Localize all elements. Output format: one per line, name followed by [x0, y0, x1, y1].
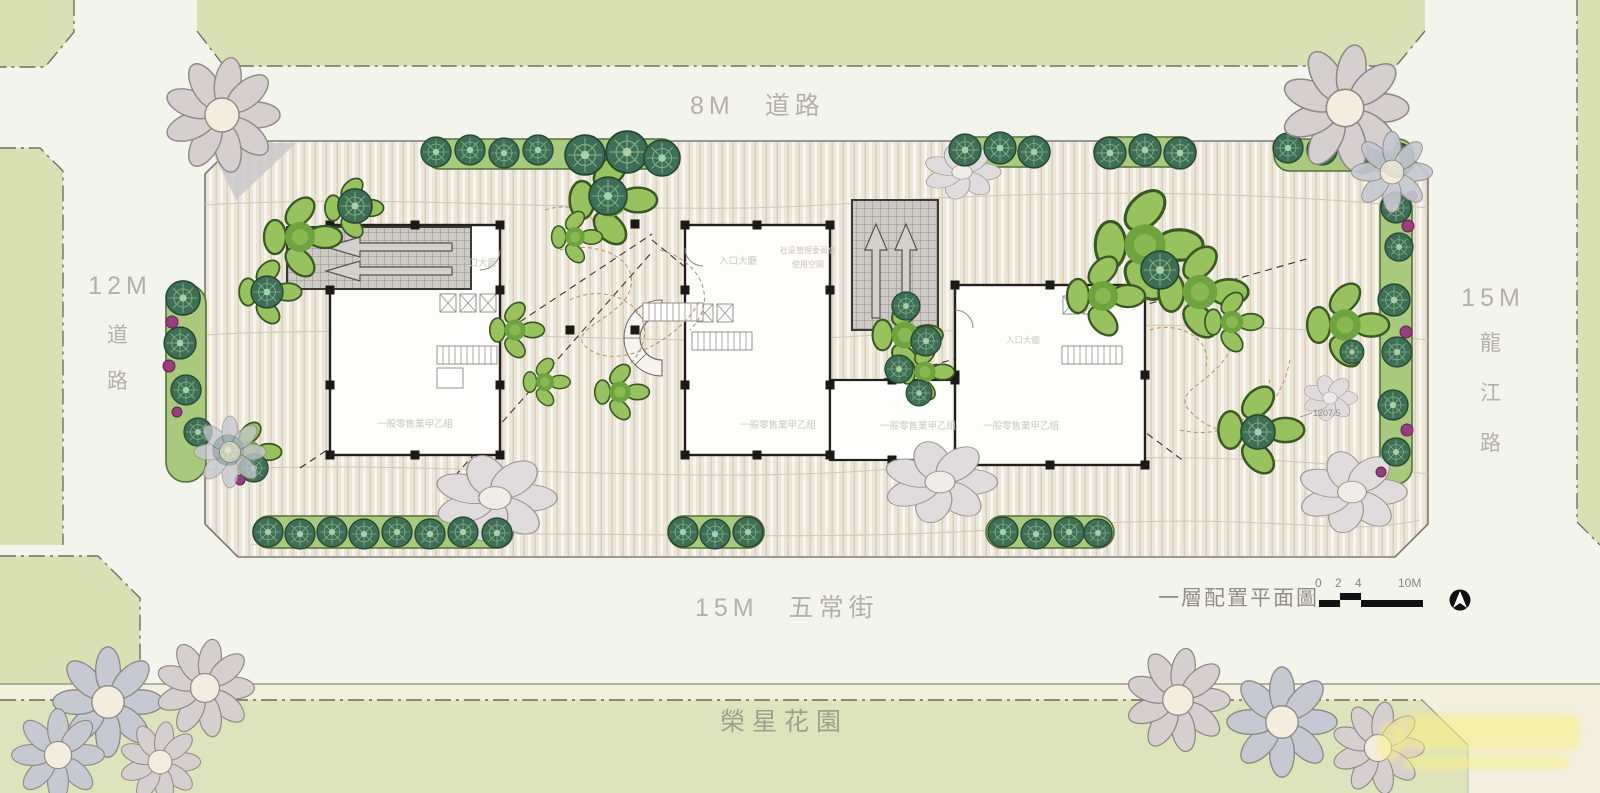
- b1-lobby-label: 入口大廳: [445, 255, 511, 269]
- road-right-size: 15M: [1458, 284, 1528, 313]
- road-top-name: 道路: [765, 92, 825, 120]
- road-left-char-2: 路: [88, 365, 152, 395]
- scale-tick-0: 0: [1315, 576, 1322, 590]
- road-left-char-1: 道: [88, 319, 152, 349]
- dimension-label: 1207.5: [1313, 408, 1341, 418]
- road-left-size: 12M: [88, 272, 152, 301]
- road-label-left: 12M 道 路: [88, 272, 152, 395]
- road-label-bottom: 15M 五常街: [695, 588, 879, 624]
- road-label-right: 15M 龍 江 路: [1458, 284, 1528, 457]
- north-arrow: [1450, 590, 1471, 611]
- road-label-top: 8M 道路: [690, 86, 825, 122]
- building-3: [955, 285, 1145, 465]
- plan-title: 一層配置平面圖: [1158, 582, 1319, 612]
- site-plan-page: 8M 道路 12M 道 路 15M 龍 江 路 15M 五常街 榮星花園 一層配…: [0, 0, 1600, 793]
- b1-retail-label: 一般零售業甲乙組: [372, 416, 458, 430]
- mid-retail-left-label: 一般零售業甲乙組: [879, 418, 957, 432]
- scale-tick-4: 4: [1355, 576, 1362, 590]
- b2-mgmt-label-line1: 社區管理委員會: [778, 245, 838, 256]
- scale-tick-2: 2: [1335, 576, 1342, 590]
- park-label: 榮星花園: [720, 702, 848, 738]
- b2-mgmt-label-line2: 使用空間: [778, 259, 838, 270]
- b3-lobby-label: 入口大廳: [995, 334, 1051, 346]
- scale-tick-10m: 10M: [1398, 576, 1421, 590]
- mid-retail-right-label: 一般零售業甲乙組: [982, 418, 1060, 432]
- road-right-char-2: 江: [1458, 377, 1528, 407]
- road-right-char-1: 龍: [1458, 327, 1528, 357]
- scale-bar-seg-3: [1361, 600, 1423, 607]
- scale-bar-seg-2: [1340, 593, 1361, 600]
- scale-bar-seg-1: [1319, 600, 1340, 607]
- road-bottom-name: 五常街: [789, 594, 879, 622]
- b2-retail-label: 一般零售業甲乙組: [737, 417, 819, 431]
- road-right-char-3: 路: [1458, 427, 1528, 457]
- road-top-size: 8M: [690, 92, 735, 120]
- b2-lobby-label: 入口大廳: [712, 253, 764, 267]
- road-bottom-size: 15M: [695, 594, 759, 622]
